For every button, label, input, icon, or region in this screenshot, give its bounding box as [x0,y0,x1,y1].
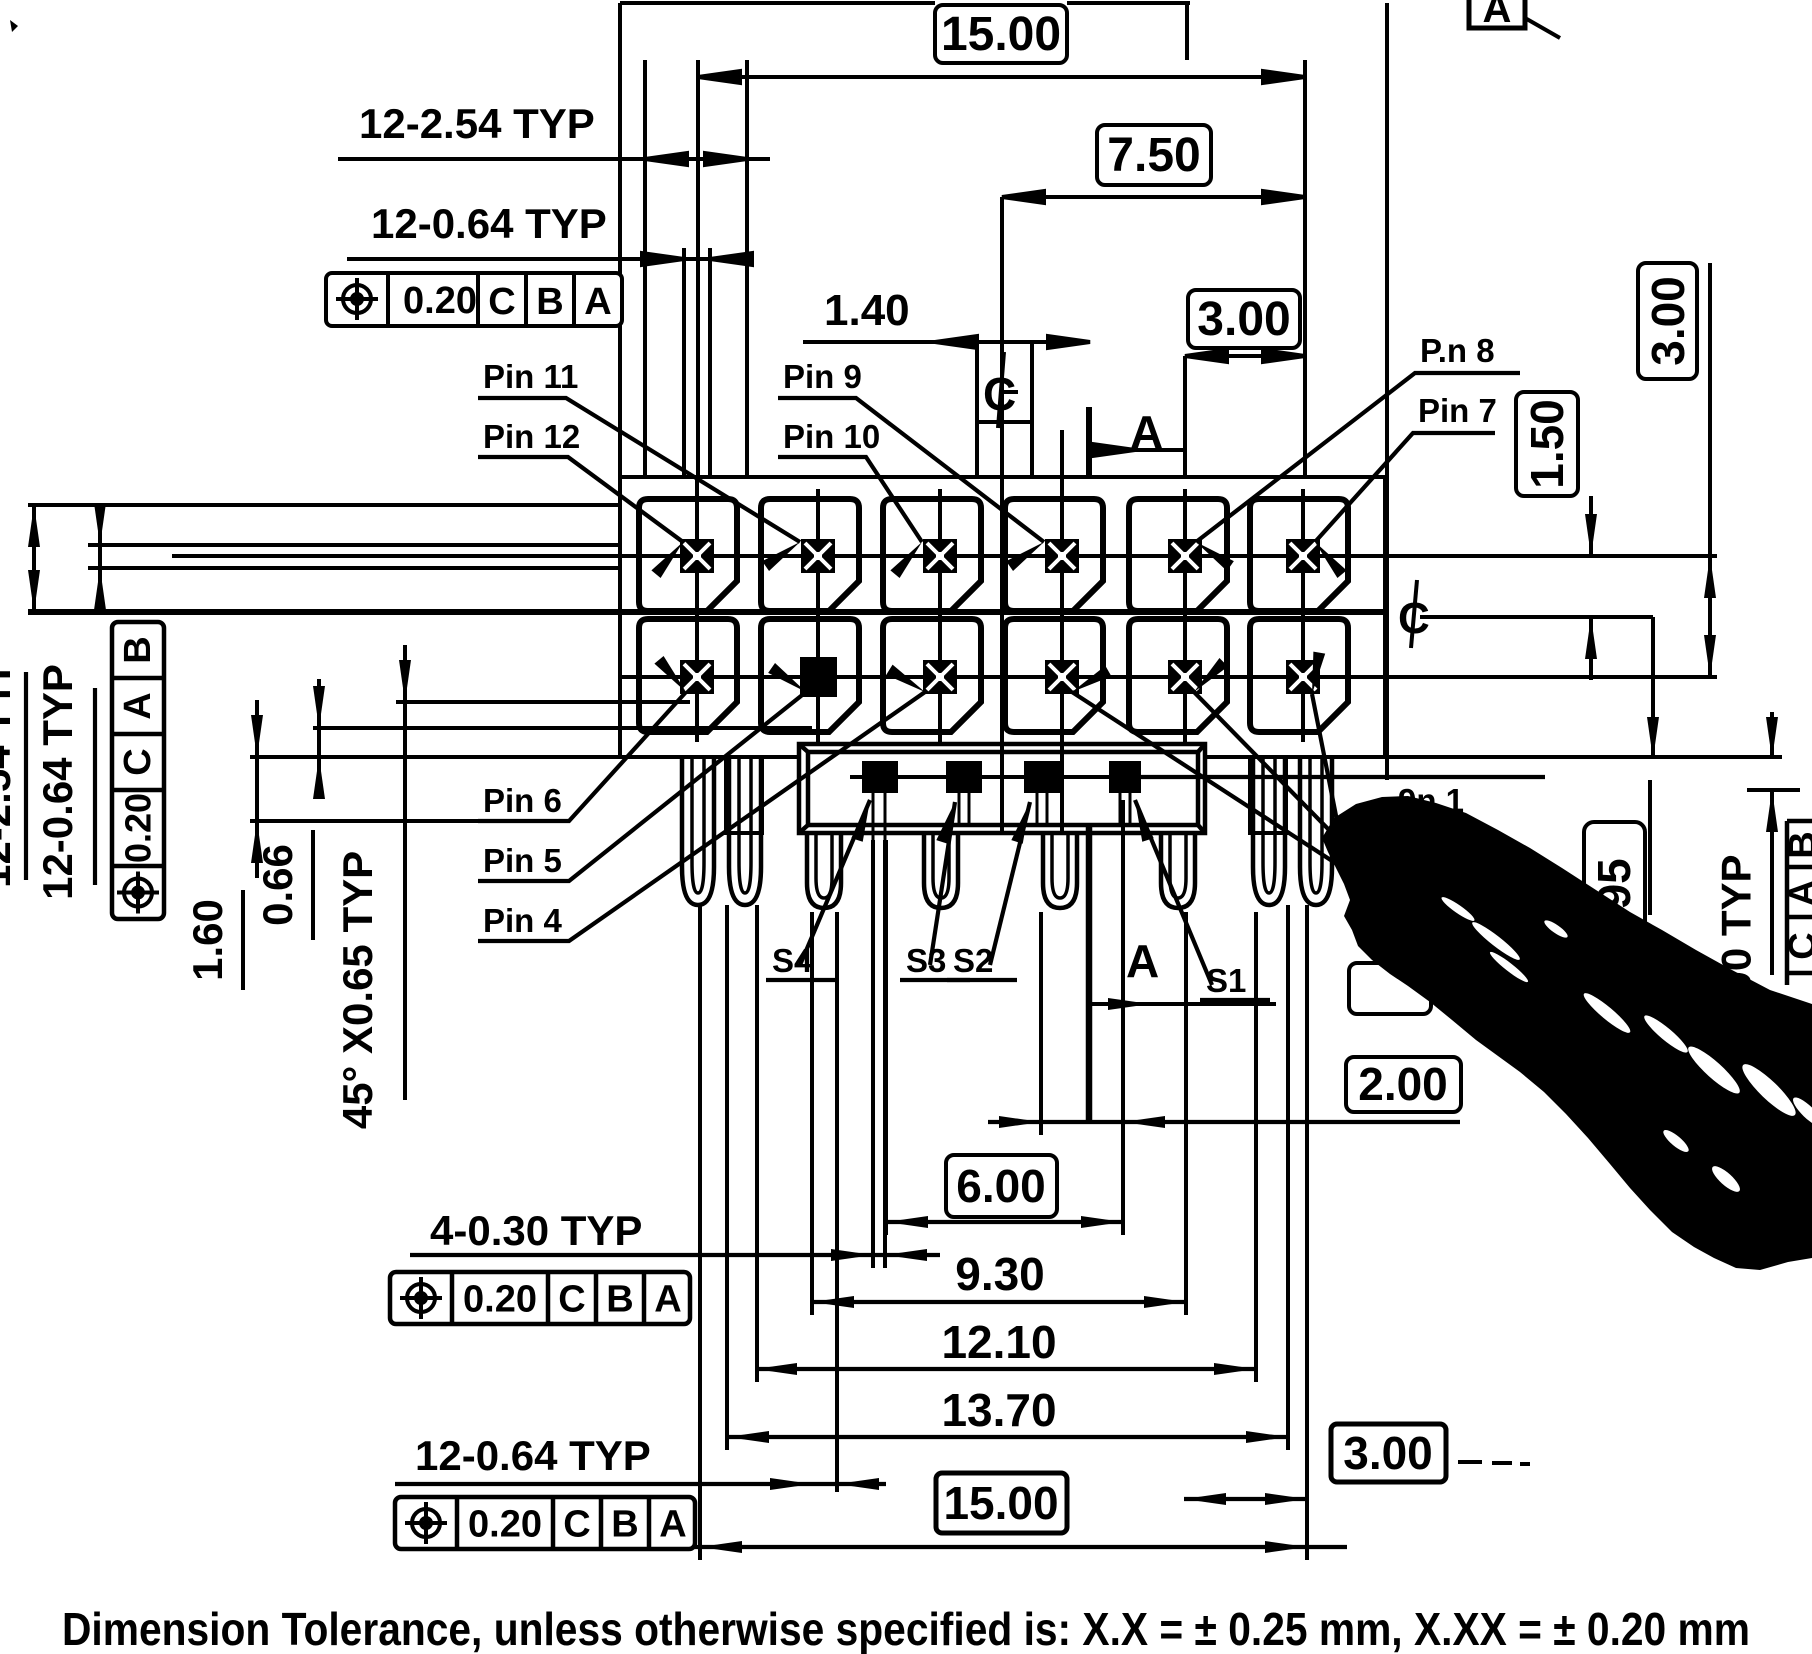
svg-text:B: B [1782,831,1812,858]
svg-text:12-0.64 TYP: 12-0.64 TYP [371,200,607,247]
svg-text:12.10: 12.10 [941,1316,1056,1368]
svg-text:C: C [1782,932,1812,959]
svg-text:B: B [117,636,159,663]
svg-text:15.00: 15.00 [941,8,1061,61]
svg-text:Pin 11: Pin 11 [483,358,578,395]
svg-text:12-0.64 TYP: 12-0.64 TYP [34,664,81,900]
svg-text:7.50: 7.50 [1107,129,1200,182]
svg-text:0.20: 0.20 [118,793,159,863]
svg-text:A: A [654,1279,681,1321]
svg-text:Pin 9: Pin 9 [783,358,862,395]
svg-text:1.40: 1.40 [824,286,910,335]
svg-text:15.00: 15.00 [943,1477,1058,1529]
svg-text:Pin 12: Pin 12 [483,418,580,455]
svg-text:1.60: 1.60 [184,899,231,981]
svg-text:A: A [1126,935,1159,987]
svg-text:A: A [659,1504,686,1546]
svg-text:9.30: 9.30 [955,1248,1045,1300]
svg-text:A: A [1130,406,1163,458]
svg-text:12-2.54 TYP: 12-2.54 TYP [0,652,19,888]
svg-text:12-2.54 TYP: 12-2.54 TYP [359,100,595,147]
svg-text:0.20: 0.20 [463,1279,537,1321]
svg-text:C: C [563,1504,590,1546]
svg-text:4-0.30 TYP: 4-0.30 TYP [430,1207,642,1254]
svg-text:1.50: 1.50 [1521,399,1573,489]
svg-text:A: A [1483,0,1512,31]
svg-text:A: A [117,692,159,719]
svg-text:C: C [117,748,159,775]
svg-text:6.00: 6.00 [956,1160,1046,1212]
svg-text:C: C [488,281,515,323]
svg-text:3.00: 3.00 [1197,293,1290,346]
svg-text:45° X0.65 TYP: 45° X0.65 TYP [334,851,381,1129]
svg-text:Pin 7: Pin 7 [1418,392,1497,429]
svg-text:B: B [611,1504,638,1546]
svg-text:B: B [536,281,563,323]
svg-text:13.70: 13.70 [941,1384,1056,1436]
svg-text:C: C [558,1279,585,1321]
svg-text:A: A [1782,879,1812,906]
svg-text:Dimension Tolerance, unless ot: Dimension Tolerance, unless otherwise sp… [62,1603,1750,1654]
svg-text:S2: S2 [953,942,993,979]
svg-text:S3: S3 [906,942,946,979]
svg-text:B: B [606,1279,633,1321]
svg-text:3.00: 3.00 [1343,1427,1433,1479]
svg-text:Pin 10: Pin 10 [783,418,880,455]
svg-text:P.n 8: P.n 8 [1420,332,1495,369]
svg-text:3.00: 3.00 [1642,276,1694,366]
svg-text:2.00: 2.00 [1358,1058,1448,1110]
svg-text:0.20: 0.20 [403,280,477,322]
svg-text:Pin 4: Pin 4 [483,902,563,939]
svg-text:Pin 5: Pin 5 [483,842,562,879]
svg-text:Pin 6: Pin 6 [483,782,562,819]
svg-text:0.66: 0.66 [254,844,301,926]
svg-text:12-0.64 TYP: 12-0.64 TYP [415,1432,651,1479]
svg-text:0.20: 0.20 [468,1504,542,1546]
svg-text:A: A [584,281,611,323]
